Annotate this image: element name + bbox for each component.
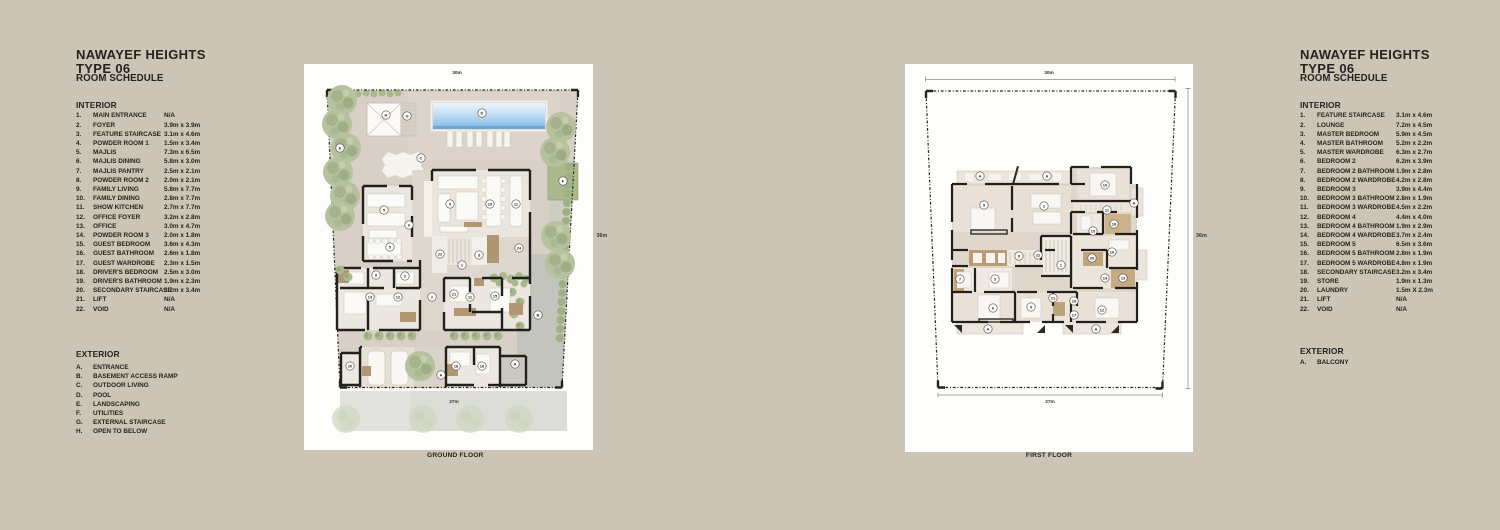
svg-text:20: 20 (348, 364, 353, 369)
svg-text:30m: 30m (452, 70, 462, 76)
svg-text:C: C (420, 156, 423, 161)
svg-text:12: 12 (1100, 308, 1105, 313)
svg-text:27m: 27m (1045, 399, 1055, 405)
svg-text:13: 13 (368, 295, 373, 300)
svg-text:30m: 30m (1044, 70, 1054, 76)
svg-text:A: A (440, 373, 443, 378)
svg-text:19: 19 (1072, 299, 1077, 304)
svg-text:15: 15 (493, 294, 498, 299)
svg-text:18: 18 (1112, 222, 1117, 227)
svg-text:16: 16 (1110, 250, 1115, 255)
svg-text:G: G (405, 114, 408, 119)
svg-text:20: 20 (1090, 256, 1095, 261)
svg-text:H: H (385, 113, 388, 118)
svg-text:A: A (979, 174, 982, 179)
svg-text:B: B (537, 313, 540, 318)
svg-text:D: D (481, 111, 484, 116)
svg-text:27m: 27m (449, 399, 459, 405)
svg-text:16: 16 (480, 364, 485, 369)
svg-text:15: 15 (1091, 229, 1096, 234)
svg-text:12: 12 (396, 295, 401, 300)
svg-text:10: 10 (1103, 183, 1108, 188)
svg-text:21: 21 (1051, 296, 1056, 301)
svg-text:A: A (1095, 327, 1098, 332)
svg-text:A: A (1046, 174, 1049, 179)
svg-text:22: 22 (438, 252, 443, 257)
svg-text:A: A (1133, 201, 1136, 206)
svg-text:24: 24 (517, 246, 522, 251)
svg-text:13: 13 (1121, 276, 1126, 281)
svg-text:22: 22 (1036, 253, 1041, 258)
svg-text:A: A (514, 362, 517, 367)
svg-text:17: 17 (1072, 313, 1077, 318)
svg-text:21: 21 (452, 292, 457, 297)
svg-text:18: 18 (454, 364, 459, 369)
svg-text:E: E (339, 146, 342, 151)
svg-text:10: 10 (488, 202, 493, 207)
svg-text:A: A (987, 327, 990, 332)
svg-text:14: 14 (1103, 276, 1108, 281)
